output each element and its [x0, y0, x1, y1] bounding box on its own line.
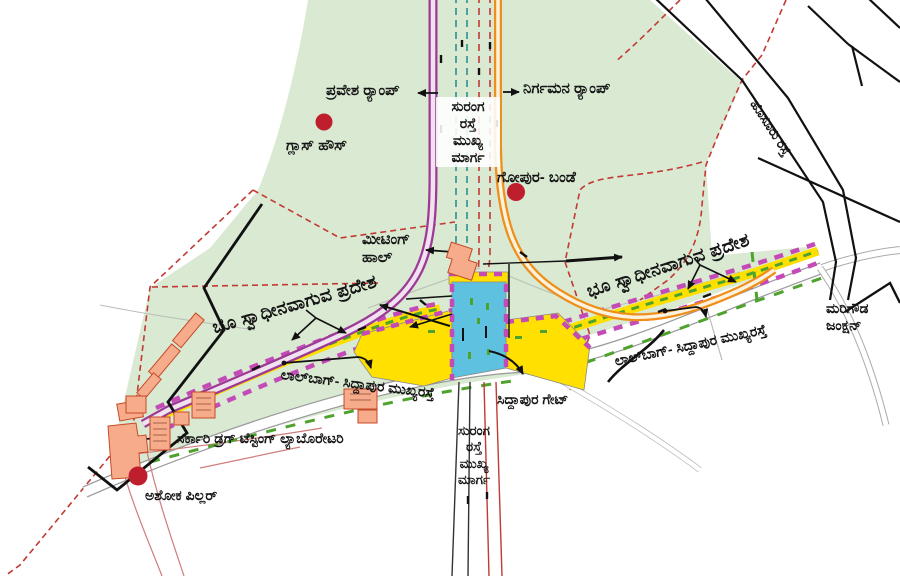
label-meeting-hall: ಮೀಟಿಂಗ್ ಹಾಲ್ — [362, 231, 410, 268]
label-tunnel-main-top: ಸುರಂಗ ರಸ್ತೆ ಮುಖ್ಯ ಮಾರ್ಗ — [436, 97, 500, 167]
label-siddapura-gate: ಸಿದ್ದಾಪುರ ಗೇಟ್ — [497, 391, 568, 408]
tunnel-portal-blue — [452, 282, 506, 378]
label-drug-lab: ಸರ್ಕಾರಿ ಡ್ರಗ್ ಟೆಸ್ಟಿಂಗ್ ಲ್ಯಾಬೊರೇಟರಿ — [177, 430, 344, 447]
label-entrance-ramp: ಪ್ರವೇಶ ರ‍್ಯಾಂಪ್ — [326, 82, 400, 100]
label-tunnel-main-bottom: ಸುರಂಗ ರಸ್ತೆ ಮುಖ್ಯ ಮಾರ್ಗ — [446, 423, 502, 489]
label-ashoka-pillar: ಅಶೋಕ ಪಿಲ್ಲರ್ — [145, 487, 217, 504]
label-glass-house: ಗ್ಲಾಸ್ ಹೌಸ್ — [286, 137, 347, 155]
label-exit-ramp: ನಿರ್ಗಮನ ರ‍್ಯಾಂಪ್ — [523, 80, 610, 98]
glass-house-dot — [316, 114, 333, 131]
lalbagh-tunnel-plan-map — [0, 0, 900, 576]
ashoka-pillar-dot — [129, 467, 148, 486]
label-marigowda-junction: ಮರಿಗೌಡ ಜಂಕ್ಷನ್ — [826, 300, 868, 334]
label-gopura-bande: ಗೋಪುರ- ಬಂಡೆ — [497, 169, 576, 187]
map-canvas: ಪ್ರವೇಶ ರ‍್ಯಾಂಪ್ ನಿರ್ಗಮನ ರ‍್ಯಾಂಪ್ ಸುರಂಗ ರ… — [0, 0, 900, 576]
